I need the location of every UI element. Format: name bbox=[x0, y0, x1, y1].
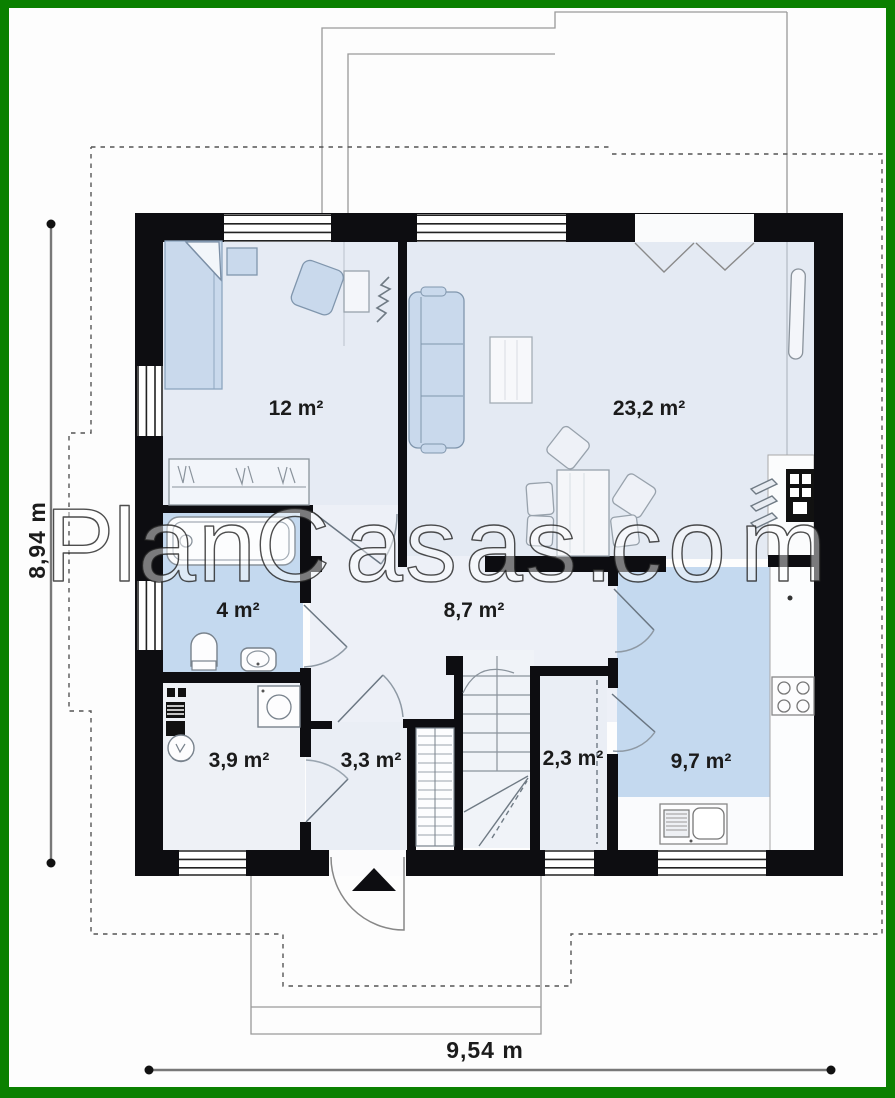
svg-text:.: . bbox=[584, 488, 613, 604]
svg-text:23,2 m²: 23,2 m² bbox=[613, 397, 685, 420]
svg-text:3,3 m²: 3,3 m² bbox=[341, 749, 402, 772]
svg-text:s: s bbox=[525, 488, 577, 604]
svg-text:9,7 m²: 9,7 m² bbox=[671, 750, 732, 773]
svg-text:12 m²: 12 m² bbox=[269, 397, 324, 420]
svg-text:a: a bbox=[345, 488, 403, 604]
svg-text:c: c bbox=[610, 488, 662, 604]
svg-text:a: a bbox=[138, 488, 196, 604]
svg-text:P: P bbox=[45, 488, 114, 604]
svg-text:3,9 m²: 3,9 m² bbox=[209, 749, 270, 772]
svg-text:C: C bbox=[255, 488, 330, 604]
svg-text:a: a bbox=[465, 488, 523, 604]
svg-text:n: n bbox=[198, 488, 256, 604]
svg-text:o: o bbox=[668, 488, 726, 604]
svg-text:s: s bbox=[405, 488, 457, 604]
svg-text:9,54 m: 9,54 m bbox=[446, 1037, 524, 1063]
svg-text:2,3 m²: 2,3 m² bbox=[543, 747, 604, 770]
svg-text:l: l bbox=[113, 488, 136, 604]
svg-text:m: m bbox=[740, 488, 827, 604]
